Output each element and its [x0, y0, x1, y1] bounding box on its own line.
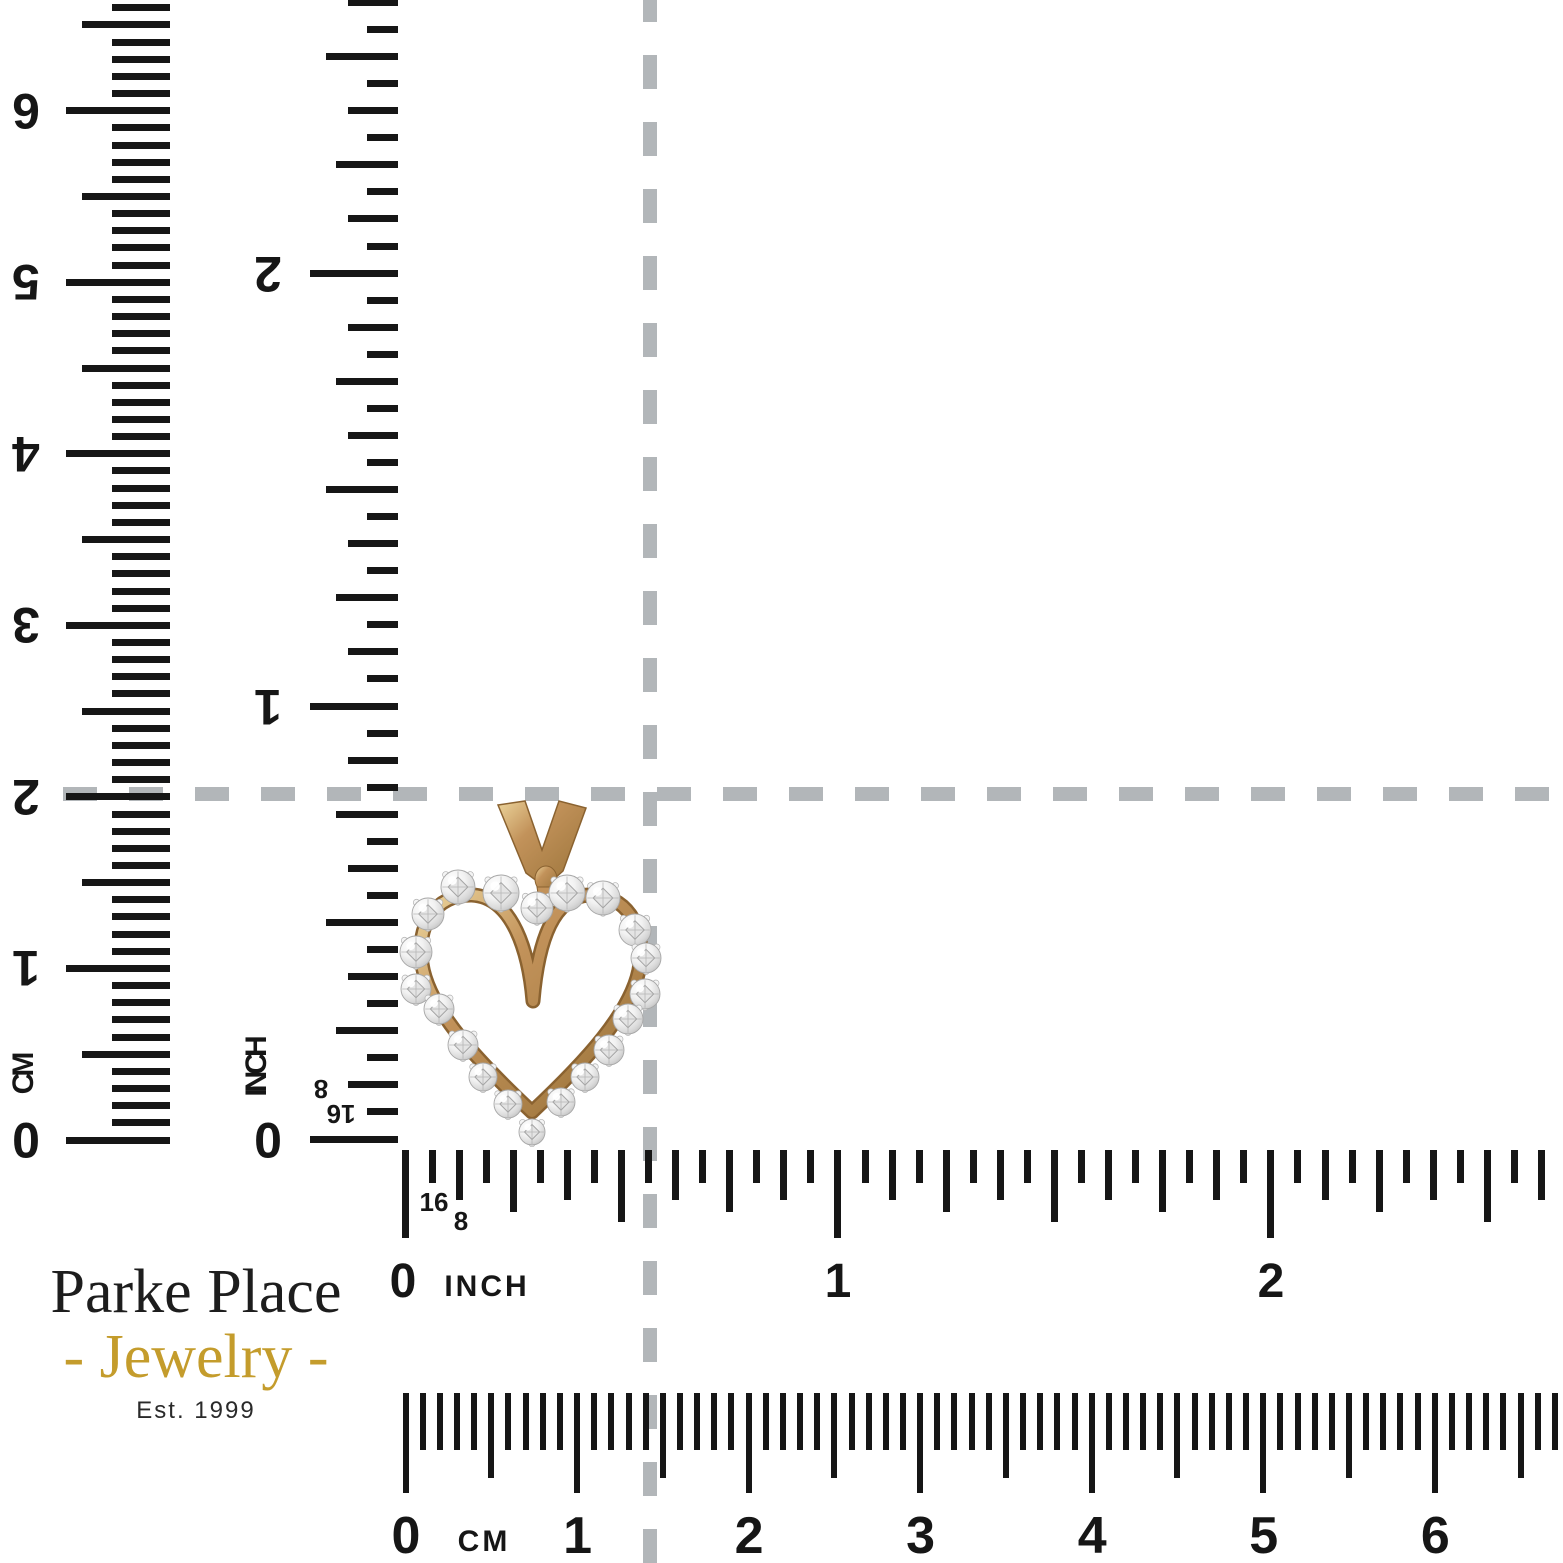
- ruler-tick: [112, 433, 170, 440]
- ruler-tick: [454, 1393, 460, 1450]
- ruler-tick: [66, 107, 170, 114]
- ruler-tick: [367, 675, 398, 682]
- ruler-tick: [1140, 1393, 1146, 1450]
- ruler-tick: [1186, 1150, 1193, 1183]
- cm-ruler-number: 4: [1078, 1510, 1107, 1562]
- ruler-tick: [780, 1150, 787, 1200]
- ruler-tick: [367, 243, 398, 250]
- ruler-tick: [1432, 1393, 1438, 1493]
- ruler-tick: [112, 1102, 170, 1109]
- ruler-tick: [1415, 1393, 1421, 1450]
- ruler-tick: [1363, 1393, 1369, 1450]
- ruler-tick: [367, 1054, 398, 1061]
- ruler-tick: [866, 1393, 872, 1450]
- ruler-tick: [1072, 1393, 1078, 1450]
- ruler-tick: [862, 1150, 869, 1183]
- ruler-tick: [1380, 1393, 1386, 1450]
- ruler-tick: [1322, 1150, 1329, 1200]
- ruler-tick: [505, 1393, 511, 1450]
- ruler-tick: [1511, 1150, 1518, 1183]
- ruler-tick: [112, 262, 170, 269]
- ruler-tick: [348, 648, 398, 655]
- ruler-tick: [367, 567, 398, 574]
- diamond-stone: [469, 1063, 497, 1093]
- ruler-tick: [574, 1393, 580, 1493]
- inch-ruler-number: 1: [825, 1258, 852, 1306]
- ruler-tick: [66, 793, 170, 800]
- ruler-tick: [711, 1393, 717, 1450]
- ruler-tick: [310, 703, 398, 710]
- ruler-tick: [523, 1393, 529, 1450]
- ruler-tick: [917, 1393, 923, 1493]
- inch-ruler-sixteenth-label: 16: [327, 1101, 356, 1127]
- ruler-tick: [699, 1150, 706, 1183]
- crosshair-vertical-line: [643, 0, 657, 1563]
- ruler-tick: [1277, 1393, 1283, 1450]
- ruler-tick: [82, 1051, 170, 1058]
- ruler-tick: [348, 865, 398, 872]
- ruler-tick: [348, 324, 398, 331]
- ruler-tick: [348, 757, 398, 764]
- ruler-tick: [1312, 1393, 1318, 1450]
- ruler-tick: [66, 279, 170, 286]
- diamond-stone: [613, 1004, 643, 1036]
- ruler-tick: [310, 1136, 398, 1143]
- ruler-tick: [367, 784, 398, 791]
- ruler-tick: [112, 931, 170, 938]
- ruler-tick: [889, 1150, 896, 1200]
- ruler-tick: [969, 1393, 975, 1450]
- ruler-tick: [112, 811, 170, 818]
- diamond-heart-pendant-photo: [395, 795, 661, 1168]
- ruler-tick: [943, 1150, 950, 1212]
- ruler-tick: [112, 56, 170, 63]
- brand-established: Est. 1999: [28, 1397, 364, 1425]
- brand-product-line: - Jewelry -: [28, 1326, 364, 1389]
- ruler-tick: [336, 378, 398, 385]
- ruler-tick: [112, 845, 170, 852]
- ruler-tick: [112, 828, 170, 835]
- brand-logo: Parke Place - Jewelry - Est. 1999: [28, 1260, 364, 1425]
- ruler-tick: [112, 896, 170, 903]
- ruler-tick: [1466, 1393, 1472, 1450]
- ruler-tick: [112, 467, 170, 474]
- ruler-tick: [1329, 1393, 1335, 1450]
- ruler-tick: [403, 1393, 409, 1493]
- ruler-tick: [112, 690, 170, 697]
- ruler-tick: [326, 53, 398, 60]
- ruler-tick: [951, 1393, 957, 1450]
- ruler-tick: [1538, 1150, 1545, 1200]
- ruler-tick: [112, 485, 170, 492]
- ruler-tick: [1295, 1393, 1301, 1450]
- ruler-tick: [916, 1150, 923, 1183]
- ruler-tick: [112, 296, 170, 303]
- inch-ruler-sixteenth-label: 16: [420, 1189, 449, 1215]
- ruler-tick: [1240, 1150, 1247, 1183]
- cm-ruler-number: 6: [1421, 1510, 1450, 1562]
- ruler-tick: [420, 1393, 426, 1450]
- ruler-tick: [112, 588, 170, 595]
- ruler-tick: [112, 124, 170, 131]
- ruler-tick: [367, 838, 398, 845]
- cm-ruler-number: 0: [392, 1510, 421, 1562]
- ruler-tick: [367, 892, 398, 899]
- ruler-tick: [348, 1081, 398, 1088]
- ruler-tick: [348, 215, 398, 222]
- ruler-tick: [997, 1150, 1004, 1200]
- ruler-tick: [672, 1150, 679, 1200]
- ruler-tick: [437, 1393, 443, 1450]
- ruler-tick: [970, 1150, 977, 1183]
- ruler-tick: [1430, 1150, 1437, 1200]
- ruler-tick: [112, 1119, 170, 1126]
- ruler-tick: [1260, 1393, 1266, 1493]
- ruler-tick: [326, 486, 398, 493]
- ruler-tick: [643, 1393, 649, 1450]
- diamond-stone: [586, 881, 620, 916]
- ruler-tick: [82, 536, 170, 543]
- ruler-tick: [326, 919, 398, 926]
- ruler-tick: [1003, 1393, 1009, 1478]
- ruler-tick: [1552, 1393, 1558, 1450]
- ruler-tick: [883, 1393, 889, 1450]
- cm-ruler-unit-label: CM: [9, 1056, 39, 1095]
- ruler-tick: [367, 297, 398, 304]
- diamond-stone: [594, 1035, 624, 1067]
- cm-ruler-number: 2: [735, 1510, 764, 1562]
- diamond-stone: [547, 1088, 575, 1118]
- ruler-tick: [112, 313, 170, 320]
- cm-ruler-number: 3: [12, 600, 40, 650]
- ruler-tick: [82, 193, 170, 200]
- ruler-tick: [112, 244, 170, 251]
- ruler-tick: [367, 730, 398, 737]
- ruler-tick: [112, 570, 170, 577]
- ruler-tick: [1123, 1393, 1129, 1450]
- ruler-tick: [112, 553, 170, 560]
- ruler-tick: [1213, 1150, 1220, 1200]
- ruler-tick: [66, 1137, 170, 1144]
- ruler-tick: [1484, 1150, 1491, 1222]
- ruler-tick: [367, 188, 398, 195]
- ruler-tick: [1078, 1150, 1085, 1183]
- ruler-tick: [934, 1393, 940, 1450]
- ruler-tick: [336, 811, 398, 818]
- ruler-tick: [112, 210, 170, 217]
- ruler-tick: [677, 1393, 683, 1450]
- ruler-tick: [112, 639, 170, 646]
- ruler-tick: [608, 1393, 614, 1450]
- cm-ruler-number: 4: [12, 429, 40, 479]
- ruler-tick: [367, 621, 398, 628]
- ruler-tick: [112, 913, 170, 920]
- ruler-tick: [310, 270, 398, 277]
- ruler-tick: [112, 159, 170, 166]
- ruler-tick: [82, 708, 170, 715]
- ruler-tick: [367, 80, 398, 87]
- ruler-tick: [1403, 1150, 1410, 1183]
- ruler-tick: [112, 1034, 170, 1041]
- ruler-tick: [112, 519, 170, 526]
- ruler-tick: [336, 1027, 398, 1034]
- ruler-tick: [336, 594, 398, 601]
- ruler-tick: [1037, 1393, 1043, 1450]
- ruler-tick: [367, 351, 398, 358]
- ruler-tick: [1500, 1393, 1506, 1450]
- ruler-tick: [1192, 1393, 1198, 1450]
- ruler-tick: [849, 1393, 855, 1450]
- ruler-tick: [66, 965, 170, 972]
- ruler-tick: [1243, 1393, 1249, 1450]
- ruler-tick: [797, 1393, 803, 1450]
- ruler-tick: [112, 725, 170, 732]
- ruler-tick: [112, 330, 170, 337]
- ruler-tick: [112, 1085, 170, 1092]
- ruler-tick: [986, 1393, 992, 1450]
- inch-ruler-number: 0: [254, 1115, 282, 1165]
- ruler-tick: [367, 946, 398, 953]
- ruler-tick: [1054, 1393, 1060, 1450]
- ruler-tick: [780, 1393, 786, 1450]
- ruler-tick: [112, 73, 170, 80]
- ruler-tick: [694, 1393, 700, 1450]
- ruler-tick: [1226, 1393, 1232, 1450]
- ruler-tick: [1051, 1150, 1058, 1222]
- ruler-tick: [112, 605, 170, 612]
- ruler-tick: [112, 759, 170, 766]
- ruler-tick: [82, 879, 170, 886]
- ruler-tick: [112, 176, 170, 183]
- ruler-tick: [900, 1393, 906, 1450]
- ruler-tick: [1105, 1150, 1112, 1200]
- diamond-stone: [571, 1063, 599, 1093]
- ruler-tick: [112, 948, 170, 955]
- ruler-tick: [471, 1393, 477, 1450]
- ruler-tick: [1132, 1150, 1139, 1183]
- ruler-tick: [814, 1393, 820, 1450]
- ruler-tick: [1376, 1150, 1383, 1212]
- ruler-tick: [807, 1150, 814, 1183]
- ruler-tick: [831, 1393, 837, 1478]
- ruler-tick: [1483, 1393, 1489, 1450]
- ruler-tick: [753, 1150, 760, 1183]
- ruler-tick: [540, 1393, 546, 1450]
- cm-ruler-number: 0: [12, 1115, 40, 1165]
- ruler-tick: [112, 4, 170, 11]
- inch-ruler-unit-label: INCH: [444, 1272, 529, 1302]
- ruler-tick: [112, 673, 170, 680]
- ruler-tick: [112, 862, 170, 869]
- ruler-tick: [336, 161, 398, 168]
- inch-ruler-eighth-label: 8: [454, 1208, 468, 1234]
- ruler-tick: [112, 382, 170, 389]
- ruler-tick: [1267, 1150, 1274, 1238]
- ruler-tick: [112, 1068, 170, 1075]
- cm-ruler-number: 3: [906, 1510, 935, 1562]
- cm-ruler-number: 6: [12, 86, 40, 136]
- ruler-tick: [1457, 1150, 1464, 1183]
- ruler-tick: [1089, 1393, 1095, 1493]
- ruler-tick: [112, 656, 170, 663]
- diamond-stone: [519, 1119, 545, 1147]
- ruler-tick: [112, 742, 170, 749]
- ruler-tick: [1159, 1150, 1166, 1212]
- ruler-tick: [112, 416, 170, 423]
- ruler-tick: [367, 26, 398, 33]
- ruler-tick: [112, 776, 170, 783]
- ruler-tick: [112, 399, 170, 406]
- ruler-tick: [367, 513, 398, 520]
- ruler-tick: [82, 21, 170, 28]
- ruler-tick: [626, 1393, 632, 1450]
- ruler-tick: [82, 365, 170, 372]
- ruler-tick: [763, 1393, 769, 1450]
- cm-ruler-number: 5: [1249, 1510, 1278, 1562]
- inch-ruler-unit-label: INCH: [242, 1039, 272, 1096]
- ruler-tick: [1346, 1393, 1352, 1478]
- ruler-tick: [1535, 1393, 1541, 1450]
- cm-ruler-number: 1: [563, 1510, 592, 1562]
- ruler-tick: [1106, 1393, 1112, 1450]
- ruler-tick: [1449, 1393, 1455, 1450]
- ruler-tick: [112, 502, 170, 509]
- ruler-tick: [66, 450, 170, 457]
- ruler-tick: [557, 1393, 563, 1450]
- ruler-tick: [112, 142, 170, 149]
- ruler-tick: [1209, 1393, 1215, 1450]
- cm-ruler-number: 5: [12, 257, 40, 307]
- photo-canvas: 0123456CM 012INCH816 012INCH168 0123456C…: [0, 0, 1563, 1563]
- ruler-tick: [112, 347, 170, 354]
- cm-ruler-number: 2: [12, 772, 40, 822]
- crosshair-horizontal-line: [60, 787, 1563, 801]
- ruler-tick: [112, 39, 170, 46]
- ruler-tick: [367, 1108, 398, 1115]
- ruler-tick: [367, 405, 398, 412]
- ruler-tick: [112, 227, 170, 234]
- ruler-tick: [112, 90, 170, 97]
- inch-ruler-number: 2: [1258, 1258, 1285, 1306]
- ruler-tick: [834, 1150, 841, 1238]
- ruler-tick: [348, 540, 398, 547]
- ruler-tick: [488, 1393, 494, 1478]
- ruler-tick: [348, 973, 398, 980]
- cm-ruler-number: 1: [12, 943, 40, 993]
- ruler-tick: [348, 0, 398, 6]
- inch-ruler-number: 0: [390, 1258, 417, 1306]
- ruler-tick: [1174, 1393, 1180, 1478]
- ruler-tick: [1157, 1393, 1163, 1450]
- ruler-tick: [367, 459, 398, 466]
- ruler-tick: [726, 1150, 733, 1212]
- ruler-tick: [728, 1393, 734, 1450]
- ruler-tick: [367, 1000, 398, 1007]
- ruler-tick: [112, 1016, 170, 1023]
- inch-ruler-number: 2: [254, 249, 282, 299]
- pendant-heart-wire: [421, 895, 641, 1112]
- ruler-tick: [1349, 1150, 1356, 1183]
- brand-name: Parke Place: [28, 1260, 364, 1326]
- ruler-tick: [1518, 1393, 1524, 1478]
- ruler-tick: [1397, 1393, 1403, 1450]
- ruler-tick: [348, 432, 398, 439]
- ruler-tick: [746, 1393, 752, 1493]
- ruler-tick: [112, 982, 170, 989]
- ruler-tick: [367, 134, 398, 141]
- ruler-tick: [112, 999, 170, 1006]
- ruler-tick: [1020, 1393, 1026, 1450]
- ruler-tick: [66, 622, 170, 629]
- ruler-tick: [1294, 1150, 1301, 1183]
- diamond-stone: [494, 1090, 522, 1120]
- ruler-tick: [591, 1393, 597, 1450]
- ruler-tick: [660, 1393, 666, 1478]
- ruler-tick: [1024, 1150, 1031, 1183]
- ruler-tick: [348, 107, 398, 114]
- cm-ruler-unit-label: CM: [458, 1527, 511, 1557]
- inch-ruler-number: 1: [254, 682, 282, 732]
